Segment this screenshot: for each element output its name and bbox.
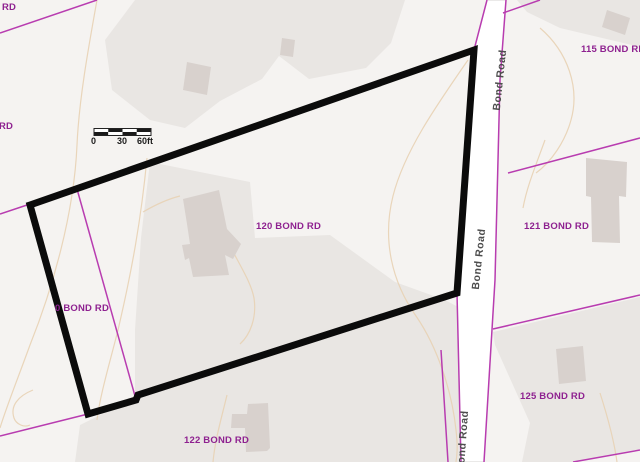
parcel-label-rd-left: RD bbox=[0, 121, 13, 132]
scale-label-sixty: 60ft bbox=[137, 136, 153, 146]
parcel-label-115: 115 BOND RD bbox=[581, 44, 640, 55]
parcel-label-rd-topleft: RD bbox=[2, 2, 16, 13]
contour-line bbox=[13, 390, 33, 426]
contour-line bbox=[0, 0, 97, 428]
scale-bar bbox=[94, 129, 151, 136]
building bbox=[183, 62, 211, 95]
parcel-label-0: 0 BOND RD bbox=[55, 303, 109, 314]
contour-line bbox=[536, 28, 574, 173]
building-121 bbox=[586, 158, 627, 243]
contour-line bbox=[523, 140, 545, 208]
scale-label-zero: 0 bbox=[91, 136, 96, 146]
terrain-patch-top bbox=[105, 0, 405, 128]
parcel-label-120: 120 BOND RD bbox=[256, 221, 321, 232]
parcel-line bbox=[0, 204, 30, 214]
building-125 bbox=[556, 346, 586, 384]
scale-label-thirty: 30 bbox=[117, 136, 127, 146]
parcel-label-125: 125 BOND RD bbox=[520, 391, 585, 402]
parcel-map-canvas[interactable]: RD RD 115 BOND RD 121 BOND RD 125 BOND R… bbox=[0, 0, 640, 462]
building bbox=[280, 38, 295, 57]
parcel-label-122: 122 BOND RD bbox=[184, 435, 249, 446]
parcel-label-121: 121 BOND RD bbox=[524, 221, 589, 232]
